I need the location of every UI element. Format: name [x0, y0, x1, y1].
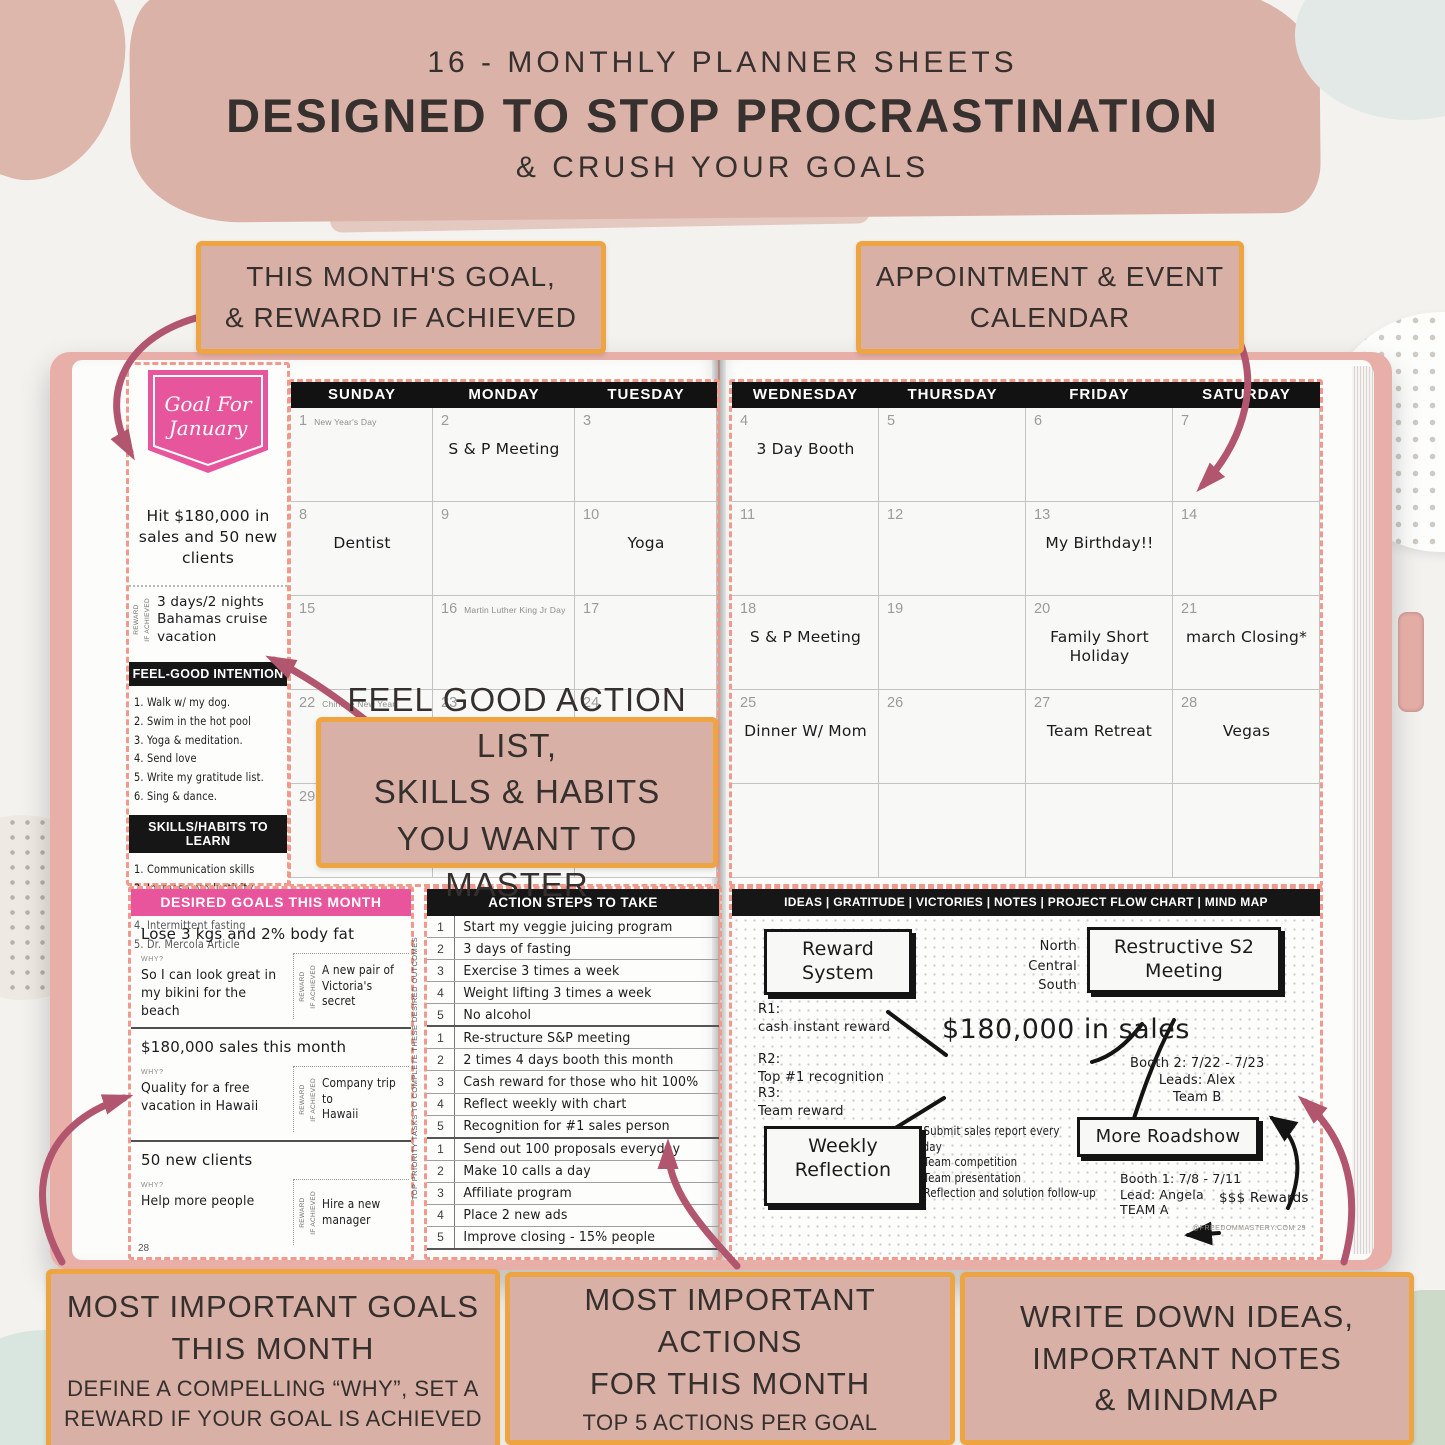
day-number: 15	[299, 601, 315, 617]
action-step-number: 1	[427, 1027, 455, 1048]
day-entry: Vegas	[1181, 722, 1312, 741]
restructive-meeting-box: Restructive S2 Meeting	[1087, 927, 1281, 993]
day-cell-head: 7	[1181, 413, 1312, 429]
page-number-left: 28	[138, 1243, 149, 1254]
action-step-number: 2	[427, 938, 455, 959]
day-cell-head: 12	[887, 507, 1018, 523]
action-step-text: Weight lifting 3 times a week	[455, 985, 652, 1001]
day-number: 11	[740, 507, 755, 523]
why-label: WHY?	[141, 956, 299, 963]
day-cell-head: 9	[441, 507, 567, 523]
day-cell-head: 20	[1034, 601, 1165, 617]
callout-month-goal: THIS MONTH'S GOAL, & REWARD IF ACHIEVED	[196, 241, 606, 354]
feel-good-intention-header: FEEL-GOOD INTENTION	[129, 662, 287, 686]
goal-text: 50 new clients	[131, 1142, 411, 1169]
feel-good-item: 5. Write my gratitude list.	[134, 768, 260, 787]
calendar-day-cell: 3	[575, 408, 717, 502]
day-holiday-note: Martin Luther King Jr Day	[464, 605, 565, 615]
callout-appointment-text: APPOINTMENT & EVENT CALENDAR	[876, 257, 1224, 338]
calendar-day-cell: 15	[291, 596, 433, 690]
calendar-day-cell: 12	[879, 502, 1026, 596]
calendar-day-cell: 13 My Birthday!!	[1026, 502, 1173, 596]
month-goal-text: Hit $180,000 in sales and 50 new clients	[129, 506, 287, 569]
day-number: 13	[1034, 507, 1050, 523]
headline-line1: 16 - MONTHLY PLANNER SHEETS	[0, 46, 1445, 80]
action-step-number: 5	[427, 1004, 455, 1025]
action-steps-list: 1 Start my veggie juicing program 2 3 da…	[427, 916, 719, 1250]
action-step-text: Improve closing - 15% people	[455, 1229, 655, 1245]
callout-write-down-text: WRITE DOWN IDEAS, IMPORTANT NOTES & MIND…	[1020, 1296, 1354, 1422]
mindmap-section: IDEAS | GRATITUDE | VICTORIES | NOTES | …	[729, 886, 1323, 1260]
calendar-day-cell	[879, 784, 1026, 878]
regions-text: North Central South	[972, 937, 1077, 996]
day-header: TUESDAY	[575, 382, 717, 408]
day-cell-head	[1181, 789, 1312, 793]
day-header: FRIDAY	[1026, 382, 1173, 408]
calendar-day-cell: 20 Family Short Holiday	[1026, 596, 1173, 690]
center-goal-text: $180,000 in sales	[942, 1014, 1190, 1045]
day-number: 1	[299, 413, 307, 429]
calendar-day-cell	[1173, 784, 1320, 878]
calendar-day-cell: 28 Vegas	[1173, 690, 1320, 784]
headline-line2: DESIGNED TO STOP PROCRASTINATION	[0, 88, 1445, 143]
action-step-text: Recognition for #1 sales person	[455, 1118, 670, 1134]
day-cell-head: 11	[740, 507, 871, 523]
callout-important-actions-sub: TOP 5 ACTIONS PER GOAL	[582, 1408, 877, 1438]
day-number: 2	[441, 413, 449, 429]
goal-reward: REWARD IF ACHIEVED Company trip to Hawai…	[293, 1066, 409, 1132]
goal-reward: REWARD IF ACHIEVED A new pair of Victori…	[293, 953, 409, 1019]
action-step-text: 2 times 4 days booth this month	[455, 1052, 673, 1068]
calendar-day-cell	[732, 784, 879, 878]
priority-strip: TOP PRIORITY TASKS TO COMPLETE THESE DES…	[404, 888, 424, 1250]
calendar-day-cell: 14	[1173, 502, 1320, 596]
calendar-day-cell: 21 march Closing*	[1173, 596, 1320, 690]
mindmap-header: IDEAS | GRATITUDE | VICTORIES | NOTES | …	[732, 889, 1320, 916]
day-number: 4	[740, 413, 748, 429]
callout-appointment: APPOINTMENT & EVENT CALENDAR	[856, 241, 1244, 354]
goal-why: WHY? So I can look great in my bikini fo…	[131, 953, 309, 1025]
feel-good-item: 2. Swim in the hot pool	[134, 712, 260, 731]
action-step-row: 1 Start my veggie juicing program	[427, 916, 719, 938]
action-step-row: 5 No alcohol	[427, 1004, 719, 1027]
day-number: 14	[1181, 507, 1197, 523]
weekly-list-text: 1. Submit sales report every Friday 2. T…	[910, 1124, 1096, 1202]
calendar-day-cell: 2 S & P Meeting	[433, 408, 575, 502]
feel-good-list: 1. Walk w/ my dog.2. Swim in the hot poo…	[129, 686, 287, 808]
day-entry: Team Retreat	[1034, 722, 1165, 741]
calendar-day-cell: 8 Dentist	[291, 502, 433, 596]
calendar-day-cell: 7	[1173, 408, 1320, 502]
day-number: 16	[441, 601, 457, 617]
callout-month-goal-text: THIS MONTH'S GOAL, & REWARD IF ACHIEVED	[225, 257, 577, 338]
reward-system-box: Reward System	[764, 929, 912, 995]
action-step-text: Send out 100 proposals everyday	[455, 1141, 680, 1157]
action-step-number: 2	[427, 1161, 455, 1182]
action-step-number: 3	[427, 960, 455, 981]
action-step-row: 3 Affiliate program	[427, 1183, 719, 1205]
day-number: 5	[887, 413, 895, 429]
day-entry: Yoga	[583, 534, 709, 553]
action-step-text: Reflect weekly with chart	[455, 1096, 627, 1112]
action-step-text: Place 2 new ads	[455, 1207, 568, 1223]
r3-text: R3: Team reward	[758, 1085, 844, 1120]
day-number: 26	[887, 695, 903, 711]
day-entry: 3 Day Booth	[740, 440, 871, 459]
day-cell-head: 26	[887, 695, 1018, 711]
goal-badge-label: Goal For January	[129, 392, 287, 440]
reward-if-achieved-label: REWARD IF ACHIEVED	[297, 965, 319, 1009]
action-step-number: 5	[427, 1227, 455, 1248]
calendar-right: WEDNESDAYTHURSDAYFRIDAYSATURDAY 4 3 Day …	[729, 379, 1323, 887]
day-header: SUNDAY	[291, 382, 433, 408]
action-step-text: No alcohol	[455, 1007, 531, 1023]
day-cell-head: 8	[299, 507, 425, 523]
goal-badge: Goal For January	[129, 370, 287, 482]
day-cell-head: 18	[740, 601, 871, 617]
calendar-day-cell: 9	[433, 502, 575, 596]
goal-text: Lose 3 kgs and 2% body fat	[131, 916, 411, 943]
day-entry: S & P Meeting	[441, 440, 567, 459]
action-step-row: 2 3 days of fasting	[427, 938, 719, 960]
action-steps-section: ACTION STEPS TO TAKE 1 Start my veggie j…	[424, 886, 722, 1260]
goal-reward: REWARD IF ACHIEVED Hire a new manager	[293, 1179, 409, 1245]
reward-if-achieved-label: REWARD IF ACHIEVED	[297, 1191, 319, 1235]
calendar-day-cell: 10 Yoga	[575, 502, 717, 596]
calendar-day-cell: 26	[879, 690, 1026, 784]
headline-line3: & CRUSH YOUR GOALS	[0, 151, 1445, 185]
day-number: 29	[299, 789, 315, 805]
action-step-row: 1 Send out 100 proposals everyday	[427, 1139, 719, 1161]
action-step-row: 3 Cash reward for those who hit 100%	[427, 1071, 719, 1093]
calendar-day-cell: 25 Dinner W/ Mom	[732, 690, 879, 784]
goal-block: $180,000 sales this month WHY? Quality f…	[131, 1029, 411, 1142]
day-number: 22	[299, 695, 315, 711]
day-cell-head: 28	[1181, 695, 1312, 711]
day-number: 9	[441, 507, 449, 523]
day-cell-head: 19	[887, 601, 1018, 617]
day-entry: march Closing*	[1181, 628, 1312, 647]
day-cell-head: 2	[441, 413, 567, 429]
day-cell-head: 4	[740, 413, 871, 429]
priority-strip-text: TOP PRIORITY TASKS TO COMPLETE THESE DES…	[410, 937, 419, 1200]
day-number: 12	[887, 507, 903, 523]
desired-goals-list: Lose 3 kgs and 2% body fat WHY? So I can…	[131, 916, 411, 1253]
day-header: WEDNESDAY	[732, 382, 879, 408]
calendar-day-cell: 18 S & P Meeting	[732, 596, 879, 690]
action-step-text: Make 10 calls a day	[455, 1163, 591, 1179]
goal-block: 50 new clients WHY? Help more people REW…	[131, 1142, 411, 1253]
sidebar-reward-text: 3 days/2 nights Bahamas cruise vacation	[157, 594, 268, 647]
action-step-row: 4 Reflect weekly with chart	[427, 1094, 719, 1116]
calendar-right-grid: 4 3 Day Booth 5 6	[732, 408, 1320, 878]
day-number: 17	[583, 601, 599, 617]
day-cell-head: 6	[1034, 413, 1165, 429]
callout-feel-good-text: FEEL GOOD ACTION LIST, SKILLS & HABITS Y…	[321, 677, 713, 908]
reward-text: A new pair of Victoria's secret	[322, 963, 398, 1010]
action-step-number: 1	[427, 1139, 455, 1160]
day-header: THURSDAY	[879, 382, 1026, 408]
calendar-day-cell: 16 Martin Luther King Jr Day	[433, 596, 575, 690]
calendar-day-cell: 5	[879, 408, 1026, 502]
day-entry: S & P Meeting	[740, 628, 871, 647]
day-entry: My Birthday!!	[1034, 534, 1165, 553]
skills-item: 1. Communication skills	[134, 860, 260, 879]
goal-text: $180,000 sales this month	[131, 1029, 411, 1056]
planner-product-image: 16 - MONTHLY PLANNER SHEETS DESIGNED TO …	[0, 0, 1445, 1445]
calendar-day-cell: 1 New Year's Day	[291, 408, 433, 502]
action-step-number: 3	[427, 1183, 455, 1204]
day-number: 27	[1034, 695, 1050, 711]
day-number: 6	[1034, 413, 1042, 429]
day-number: 10	[583, 507, 599, 523]
action-step-text: Affiliate program	[455, 1185, 572, 1201]
calendar-right-day-headers: WEDNESDAYTHURSDAYFRIDAYSATURDAY	[732, 382, 1320, 408]
goal-why: WHY? Quality for a free vacation in Hawa…	[131, 1066, 309, 1138]
day-number: 25	[740, 695, 756, 711]
reward-text: Hire a new manager	[322, 1197, 380, 1228]
goal-why: WHY? Help more people	[131, 1179, 309, 1251]
action-step-text: Start my veggie juicing program	[455, 919, 673, 935]
callout-important-goals-sub: DEFINE A COMPELLING “WHY”, SET A REWARD …	[64, 1374, 482, 1433]
day-entry: Dinner W/ Mom	[740, 722, 871, 741]
action-step-number: 3	[427, 1071, 455, 1092]
day-cell-head	[1034, 789, 1165, 793]
action-step-number: 4	[427, 1094, 455, 1115]
day-number: 21	[1181, 601, 1197, 617]
day-number: 8	[299, 507, 307, 523]
calendar-left-day-headers: SUNDAYMONDAYTUESDAY	[291, 382, 717, 408]
day-entry: Dentist	[299, 534, 425, 553]
action-step-row: 5 Improve closing - 15% people	[427, 1227, 719, 1250]
action-step-row: 3 Exercise 3 times a week	[427, 960, 719, 982]
day-holiday-note: New Year's Day	[314, 417, 377, 427]
day-entry: Family Short Holiday	[1034, 628, 1165, 667]
reward-text: Company trip to Hawaii	[322, 1076, 398, 1123]
day-number: 19	[887, 601, 903, 617]
action-step-row: 5 Recognition for #1 sales person	[427, 1116, 719, 1139]
r2-text: R2: Top #1 recognition	[758, 1051, 884, 1086]
action-step-row: 4 Weight lifting 3 times a week	[427, 982, 719, 1004]
more-roadshow-box: More Roadshow	[1077, 1117, 1259, 1157]
day-cell-head: 3	[583, 413, 709, 429]
page-edges	[1352, 366, 1374, 1254]
calendar-day-cell: 27 Team Retreat	[1026, 690, 1173, 784]
day-cell-head: 16 Martin Luther King Jr Day	[441, 601, 567, 617]
action-step-number: 2	[427, 1049, 455, 1070]
day-cell-head: 27	[1034, 695, 1165, 711]
mindmap-body: Reward System Restructive S2 Meeting Nor…	[732, 916, 1320, 1257]
feel-good-item: 6. Sing & dance.	[134, 787, 260, 806]
reward-if-achieved-label: REWARD IF ACHIEVED	[131, 598, 153, 642]
day-number: 28	[1181, 695, 1197, 711]
r1-text: R1: cash instant reward	[758, 1001, 890, 1036]
headline: 16 - MONTHLY PLANNER SHEETS DESIGNED TO …	[0, 46, 1445, 185]
day-number: 20	[1034, 601, 1050, 617]
why-label: WHY?	[141, 1069, 299, 1076]
skills-habits-header: SKILLS/HABITS TO LEARN	[129, 815, 287, 853]
day-cell-head: 10	[583, 507, 709, 523]
day-number: 3	[583, 413, 591, 429]
calendar-day-cell: 19	[879, 596, 1026, 690]
callout-important-goals: MOST IMPORTANT GOALS THIS MONTH DEFINE A…	[46, 1269, 500, 1445]
callout-write-down: WRITE DOWN IDEAS, IMPORTANT NOTES & MIND…	[960, 1272, 1414, 1445]
action-step-row: 2 2 times 4 days booth this month	[427, 1049, 719, 1071]
booth2-text: Booth 2: 7/22 - 7/23 Leads: Alex Team B	[1130, 1056, 1264, 1107]
callout-important-goals-title: MOST IMPORTANT GOALS THIS MONTH	[67, 1286, 479, 1370]
day-header: MONDAY	[433, 382, 575, 408]
callout-important-actions-title: MOST IMPORTANT ACTIONS FOR THIS MONTH	[510, 1279, 950, 1405]
calendar-day-cell: 4 3 Day Booth	[732, 408, 879, 502]
day-cell-head: 15	[299, 601, 425, 617]
day-cell-head: 14	[1181, 507, 1312, 523]
day-cell-head: 21	[1181, 601, 1312, 617]
action-step-row: 2 Make 10 calls a day	[427, 1161, 719, 1183]
feel-good-item: 1. Walk w/ my dog.	[134, 693, 260, 712]
day-cell-head	[887, 789, 1018, 793]
day-number: 18	[740, 601, 756, 617]
action-step-row: 4 Place 2 new ads	[427, 1205, 719, 1227]
day-cell-head: 17	[583, 601, 709, 617]
page-footer-right: @FREEDOMMASTERY.COM 29	[1192, 1225, 1306, 1232]
why-text: Quality for a free vacation in Hawaii	[141, 1079, 286, 1115]
action-step-number: 4	[427, 982, 455, 1003]
why-text: Help more people	[141, 1192, 286, 1210]
day-cell-head	[740, 789, 871, 793]
day-header: SATURDAY	[1173, 382, 1320, 408]
day-cell-head: 1 New Year's Day	[299, 413, 425, 429]
action-step-number: 5	[427, 1116, 455, 1137]
action-step-row: 1 Re-structure S&P meeting	[427, 1027, 719, 1049]
action-step-number: 4	[427, 1205, 455, 1226]
calendar-day-cell: 6	[1026, 408, 1173, 502]
day-cell-head: 25	[740, 695, 871, 711]
reward-if-achieved-label: REWARD IF ACHIEVED	[297, 1078, 319, 1122]
why-label: WHY?	[141, 1182, 299, 1189]
day-cell-head: 13	[1034, 507, 1165, 523]
sidebar-reward-row: REWARD IF ACHIEVED 3 days/2 nights Baham…	[129, 585, 287, 656]
callout-important-actions: MOST IMPORTANT ACTIONS FOR THIS MONTH TO…	[505, 1272, 955, 1445]
goal-sidebar: Goal For January Hit $180,000 in sales a…	[126, 362, 290, 886]
action-step-text: Re-structure S&P meeting	[455, 1030, 631, 1046]
day-number: 7	[1181, 413, 1189, 429]
day-cell-head: 5	[887, 413, 1018, 429]
desired-goals-section: DESIRED GOALS THIS MONTH Lose 3 kgs and …	[128, 886, 414, 1260]
feel-good-item: 4. Send love	[134, 749, 260, 768]
callout-feel-good: FEEL GOOD ACTION LIST, SKILLS & HABITS Y…	[316, 717, 718, 868]
action-step-text: 3 days of fasting	[455, 941, 571, 957]
why-text: So I can look great in my bikini for the…	[141, 966, 286, 1021]
action-step-text: Cash reward for those who hit 100%	[455, 1074, 698, 1090]
rewards-text: $$$ Rewards	[1219, 1189, 1309, 1207]
calendar-day-cell: 17	[575, 596, 717, 690]
elastic-band	[1398, 612, 1424, 712]
calendar-day-cell	[1026, 784, 1173, 878]
goal-block: Lose 3 kgs and 2% body fat WHY? So I can…	[131, 916, 411, 1029]
feel-good-item: 3. Yoga & meditation.	[134, 731, 260, 750]
action-step-text: Exercise 3 times a week	[455, 963, 619, 979]
calendar-day-cell: 11	[732, 502, 879, 596]
weekly-reflection-box: Weekly Reflection	[764, 1126, 922, 1206]
action-step-number: 1	[427, 916, 455, 937]
